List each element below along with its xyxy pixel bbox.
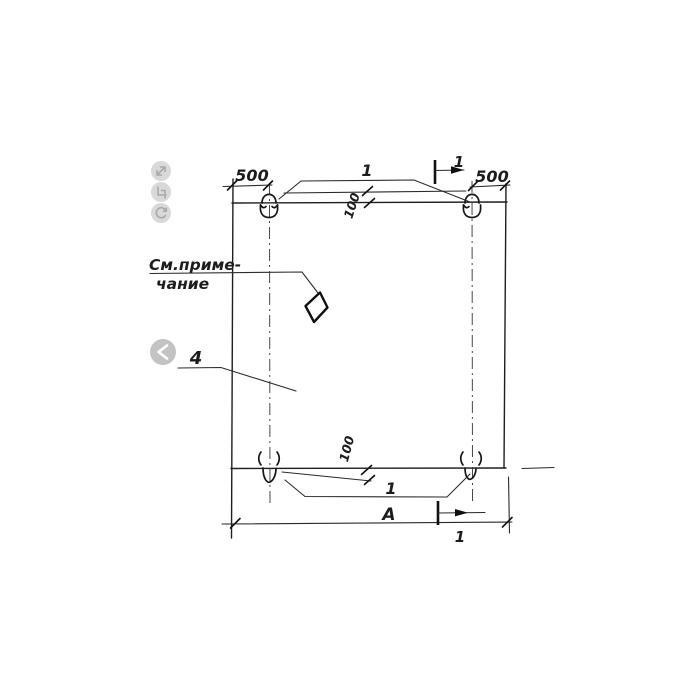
prev-button[interactable] xyxy=(150,339,176,365)
section-mark-bottom-value: 1 xyxy=(455,528,465,546)
centerline-right xyxy=(472,181,473,505)
section-mark-top: 1 xyxy=(435,153,464,184)
panel-drawing: 500 500 100 1 1 См.приме- чание 4 xyxy=(0,0,700,700)
note-text-line1: См.приме- xyxy=(149,256,241,274)
part-callout: 4 xyxy=(178,348,296,391)
dimension-100-top: 100 xyxy=(284,187,466,221)
callout-top-value: 1 xyxy=(361,161,372,180)
panel-right-edge xyxy=(504,184,506,468)
section-mark-bottom: 1 xyxy=(438,501,485,546)
lifting-loop-bottom-right xyxy=(461,452,482,479)
crop-icon[interactable] xyxy=(151,182,171,202)
note-text-line2: чание xyxy=(156,275,209,293)
dim-500-left-value: 500 xyxy=(235,166,268,185)
dim-500-right-value: 500 xyxy=(475,167,508,186)
lifting-loop-bottom-left xyxy=(259,452,280,482)
rotate-icon[interactable] xyxy=(151,203,171,223)
adjacent-edge-line xyxy=(522,468,554,469)
dimension-500-left: 500 xyxy=(223,166,273,190)
loop-centerlines xyxy=(270,181,473,505)
dim-100-bottom-value: 100 xyxy=(336,434,357,463)
expand-icon[interactable] xyxy=(151,161,171,181)
dimension-500-right: 500 xyxy=(469,167,511,191)
section-arrow-bottom xyxy=(455,509,468,516)
callout-bottom-value: 1 xyxy=(385,479,396,498)
viewer-toolbar xyxy=(151,161,171,223)
section-mark-top-value: 1 xyxy=(454,153,464,171)
scanned-drawing-page: 500 500 100 1 1 См.приме- чание 4 xyxy=(0,0,700,700)
centerline-left xyxy=(270,183,271,505)
callout-bottom-loops: 1 xyxy=(285,474,470,498)
dimension-100-bottom: 100 xyxy=(282,434,375,484)
dim-width-value: А xyxy=(380,505,395,525)
dim-100-top-value: 100 xyxy=(341,191,363,221)
lifting-loop-top-left xyxy=(260,194,277,217)
dimension-width-A: А xyxy=(222,477,512,533)
diamond-marker xyxy=(306,293,328,323)
callout-top-loops: 1 xyxy=(279,161,470,202)
panel-left-edge xyxy=(232,179,234,538)
part-number-value: 4 xyxy=(189,348,203,369)
note-callout: См.приме- чание xyxy=(149,256,328,322)
